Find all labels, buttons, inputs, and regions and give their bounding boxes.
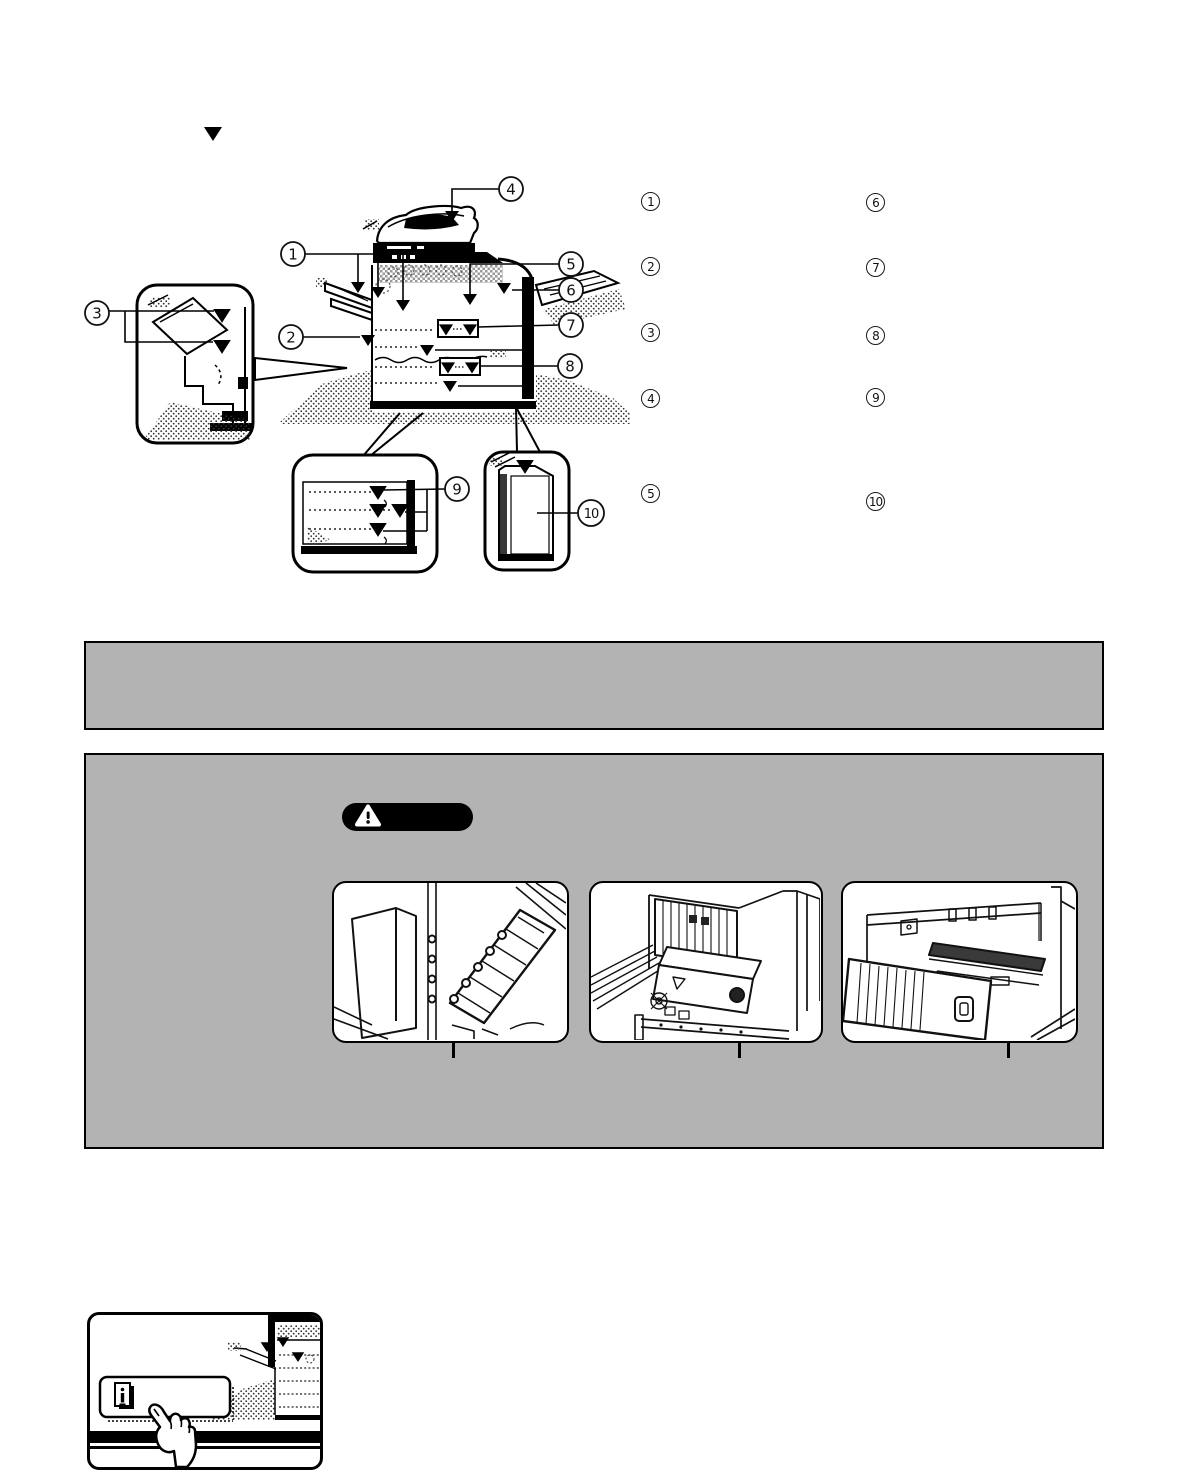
inset-pointer-wedge [255,358,347,380]
callout-circle-6: 6 [559,278,583,302]
legend-item-4: 4 [641,389,660,408]
misfeed-location-diagram: 1 2 3 4 5 6 7 8 9 10 [70,155,630,585]
callout-circle-1: 1 [281,242,305,266]
scanner-band [379,265,503,283]
down-triangle-marker [204,127,222,141]
callout-circle-3: 3 [85,301,109,325]
svg-text:1: 1 [288,246,298,264]
callout-circle-7: 7 [559,313,583,337]
legend-item-8: 8 [866,326,885,345]
drawer-inset [293,413,445,572]
arrow-pair-box-7 [438,320,478,337]
photo-pointer-line [1007,1041,1010,1058]
legend-item-1: 1 [641,192,660,211]
svg-text:4: 4 [506,181,516,199]
photo-pointer-line [452,1041,455,1058]
callout-circle-8: 8 [558,354,582,378]
legend-item-7: 7 [866,258,885,277]
info-guide-icon [115,1383,134,1409]
callout-circle-2: 2 [279,325,303,349]
manual-page: 1 2 3 4 5 6 7 8 9 10 1 2 3 4 5 6 7 8 9 1… [0,0,1190,1474]
caution-badge [342,803,473,831]
svg-text:8: 8 [565,358,575,376]
photo-misfeed-location-fusing [332,881,569,1043]
legend-item-2: 2 [641,257,660,276]
photo-misfeed-location-feed-area [841,881,1078,1043]
callout-circle-5: 5 [559,252,583,276]
photo-misfeed-location-transfer-unit [589,881,823,1043]
touch-panel-illustration [87,1312,323,1470]
finisher-inset [109,285,253,443]
svg-text:10: 10 [584,507,599,522]
svg-text:5: 5 [566,256,576,274]
document-feeder-art [363,206,478,252]
svg-text:3: 3 [92,305,102,323]
drawer-lines [375,330,437,383]
warning-triangle-icon [342,803,473,831]
photo-pointer-line [738,1041,741,1058]
svg-text:9: 9 [452,481,462,499]
legend-item-5: 5 [641,484,660,503]
svg-text:7: 7 [566,317,576,335]
callout-circle-4: 4 [499,177,523,201]
callout-circle-9: 9 [445,477,469,501]
ground-shading [280,370,630,424]
legend-item-3: 3 [641,323,660,342]
callout-circle-10: 10 [578,500,604,526]
legend-item-6: 6 [866,193,885,212]
screen-black-band [90,1431,320,1443]
left-output-tray [316,278,372,320]
legend-item-10: 10 [866,492,885,511]
svg-text:6: 6 [566,282,576,300]
lcc-tray-inset [485,407,579,570]
arrow-pair-box-8 [440,358,480,375]
svg-text:2: 2 [286,329,296,347]
legend-item-9: 9 [866,388,885,407]
note-box [84,641,1104,730]
